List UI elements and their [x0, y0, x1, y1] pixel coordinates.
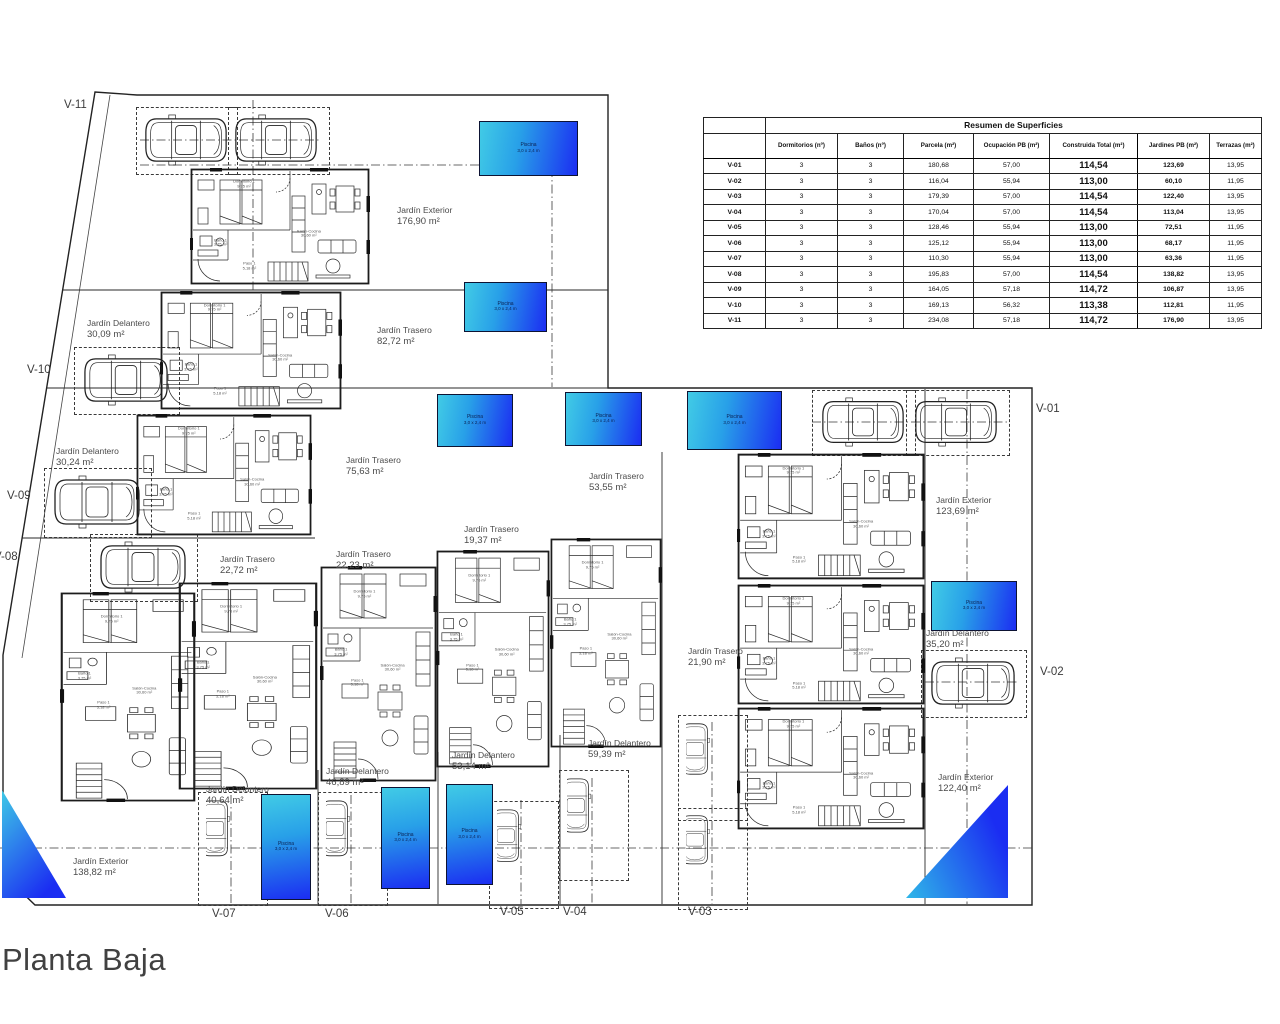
garden-name: Jardín Exterior	[938, 772, 993, 783]
garden-label: Jardín Delantero35,20 m²	[926, 628, 989, 651]
car-icon	[497, 808, 549, 900]
value-cell: 3	[838, 251, 904, 267]
table-row: V-0533128,4655,94113,0072,5111,95	[704, 220, 1262, 236]
value-cell: 3	[838, 205, 904, 221]
villa-floorplan: Dormitorio 1 9,75 m²Baño 1 3,75 m²Paso 1…	[737, 584, 925, 705]
villa-id-label: V-11	[64, 99, 87, 111]
value-cell: 3	[838, 267, 904, 283]
table-column-header: Baños (nº)	[838, 133, 904, 158]
value-cell: 3	[766, 158, 838, 174]
villa-id-cell: V-11	[704, 313, 766, 329]
garden-label: Jardín Delantero59,39 m²	[588, 738, 651, 761]
villa-floorplan: Dormitorio 1 9,75 m²Baño 1 3,75 m²Paso 1…	[60, 592, 196, 802]
villa-id-cell: V-06	[704, 236, 766, 252]
villa-id-label: V-04	[563, 906, 587, 918]
table-column-header	[704, 133, 766, 158]
value-cell: 170,04	[904, 205, 974, 221]
value-cell: 113,04	[1138, 205, 1210, 221]
value-cell: 3	[766, 313, 838, 329]
garden-name: Jardín Delantero	[87, 318, 150, 329]
garden-area: 30,09 m²	[87, 329, 150, 341]
value-cell: 114,54	[1050, 158, 1138, 174]
garden-label: Jardín Trasero19,37 m²	[464, 524, 519, 547]
villa-id-cell: V-04	[704, 205, 766, 221]
villa-floorplan: Dormitorio 1 9,75 m²Baño 1 3,75 m²Paso 1…	[550, 538, 662, 748]
villa-floorplan: Dormitorio 1 9,75 m²Baño 1 3,75 m²Paso 1…	[737, 453, 925, 580]
value-cell: 3	[838, 220, 904, 236]
table-row: V-0433170,0457,00114,54113,0413,95	[704, 205, 1262, 221]
value-cell: 3	[766, 298, 838, 314]
garden-name: Jardín Trasero	[220, 554, 275, 565]
villa-id-label: V-07	[212, 908, 236, 920]
villa-id-label: V-08	[0, 551, 18, 563]
villa-floorplan: Dormitorio 1 9,75 m²Baño 1 3,75 m²Paso 1…	[178, 582, 318, 790]
garden-name: Jardín Trasero	[688, 646, 743, 657]
villa-floorplan: Dormitorio 1 9,75 m²Baño 1 3,75 m²Paso 1…	[436, 550, 550, 768]
garden-area: 19,37 m²	[464, 535, 519, 547]
garden-area: 122,40 m²	[938, 783, 993, 795]
garden-area: 40,64 m²	[206, 795, 269, 807]
value-cell: 11,95	[1210, 220, 1262, 236]
surfaces-table-body: V-0133180,6857,00114,54123,6913,95V-0233…	[704, 158, 1262, 329]
table-row: V-0833195,8357,00114,54138,8213,95	[704, 267, 1262, 283]
villa-floorplan: Dormitorio 1 9,75 m²Baño 1 3,75 m²Paso 1…	[737, 707, 925, 830]
garden-name: Jardín Exterior	[397, 205, 452, 216]
pool-dimensions: 3,0 x 2,4 m	[394, 838, 416, 843]
value-cell: 13,95	[1210, 205, 1262, 221]
car-icon	[233, 114, 319, 166]
value-cell: 57,00	[974, 267, 1050, 283]
pool: Piscina3,0 x 2,4 m	[446, 784, 493, 885]
villa-id-cell: V-10	[704, 298, 766, 314]
value-cell: 114,54	[1050, 189, 1138, 205]
garden-label: Jardín Exterior123,69 m²	[936, 495, 991, 518]
pool: Piscina3,0 x 2,4 m	[687, 391, 782, 450]
value-cell: 57,18	[974, 282, 1050, 298]
garden-name: Jardín Delantero	[56, 446, 119, 457]
car-icon	[98, 541, 188, 593]
value-cell: 113,38	[1050, 298, 1138, 314]
value-cell: 68,17	[1138, 236, 1210, 252]
villa-id-cell: V-07	[704, 251, 766, 267]
surfaces-table: Resumen de SuperficiesDormitorios (nº)Ba…	[703, 117, 1262, 329]
value-cell: 116,04	[904, 174, 974, 190]
value-cell: 55,94	[974, 236, 1050, 252]
villa-id-label: V-10	[27, 364, 51, 376]
value-cell: 3	[766, 282, 838, 298]
value-cell: 110,30	[904, 251, 974, 267]
value-cell: 55,94	[974, 251, 1050, 267]
value-cell: 56,32	[974, 298, 1050, 314]
garden-label: Jardín Delantero53,14 m²	[452, 750, 515, 773]
table-row: V-0733110,3055,94113,0063,3611,95	[704, 251, 1262, 267]
garden-area: 59,39 m²	[588, 749, 651, 761]
value-cell: 176,90	[1138, 313, 1210, 329]
value-cell: 60,10	[1138, 174, 1210, 190]
value-cell: 113,00	[1050, 174, 1138, 190]
value-cell: 3	[766, 251, 838, 267]
garden-label: Jardín Delantero30,24 m²	[56, 446, 119, 469]
villa-floorplan: Dormitorio 1 9,75 m²Baño 1 3,75 m²Paso 1…	[190, 168, 370, 285]
value-cell: 11,95	[1210, 174, 1262, 190]
table-column-header: Dormitorios (nº)	[766, 133, 838, 158]
value-cell: 13,95	[1210, 282, 1262, 298]
value-cell: 13,95	[1210, 267, 1262, 283]
pool: Piscina3,0 x 2,4 m	[437, 394, 513, 447]
villa-id-label: V-05	[500, 906, 524, 918]
value-cell: 123,69	[1138, 158, 1210, 174]
garden-name: Jardín Delantero	[926, 628, 989, 639]
garden-area: 176,90 m²	[397, 216, 452, 228]
value-cell: 3	[838, 174, 904, 190]
garden-label: Jardín Trasero21,90 m²	[688, 646, 743, 669]
value-cell: 114,72	[1050, 282, 1138, 298]
car-icon	[206, 799, 258, 897]
table-corner-cell	[704, 118, 766, 134]
garden-area: 138,82 m²	[73, 867, 128, 879]
garden-label: Jardín Delantero46,89 m²	[326, 766, 389, 789]
value-cell: 164,05	[904, 282, 974, 298]
value-cell: 57,00	[974, 205, 1050, 221]
garden-label: Jardín Exterior138,82 m²	[73, 856, 128, 879]
table-column-header: Parcela (m²)	[904, 133, 974, 158]
table-row: V-1133234,0857,18114,72176,9013,95	[704, 313, 1262, 329]
car-icon	[913, 397, 999, 447]
value-cell: 3	[766, 205, 838, 221]
value-cell: 169,13	[904, 298, 974, 314]
pool-dimensions: 3,0 x 2,4 m	[275, 847, 297, 852]
value-cell: 113,00	[1050, 236, 1138, 252]
value-cell: 128,46	[904, 220, 974, 236]
villa-id-cell: V-03	[704, 189, 766, 205]
plan-title: Planta Baja	[2, 942, 166, 978]
value-cell: 11,95	[1210, 236, 1262, 252]
villa-id-label: V-06	[325, 908, 349, 920]
value-cell: 3	[838, 158, 904, 174]
value-cell: 13,95	[1210, 189, 1262, 205]
pool-dimensions: 3,0 x 2,4 m	[963, 606, 985, 611]
table-row: V-0233116,0455,94113,0060,1011,95	[704, 174, 1262, 190]
value-cell: 3	[766, 174, 838, 190]
villa-floorplan: Dormitorio 1 9,75 m²Baño 1 3,75 m²Paso 1…	[160, 291, 342, 410]
pool-triangle	[2, 790, 66, 898]
garden-area: 82,72 m²	[377, 336, 432, 348]
value-cell: 114,54	[1050, 205, 1138, 221]
value-cell: 113,00	[1050, 251, 1138, 267]
garden-area: 53,14 m²	[452, 761, 515, 773]
table-title: Resumen de Superficies	[766, 118, 1262, 134]
pool: Piscina3,0 x 2,4 m	[261, 794, 311, 900]
car-icon	[143, 114, 229, 166]
table-column-header: Jardines PB (m²)	[1138, 133, 1210, 158]
villa-floorplan: Dormitorio 1 9,75 m²Baño 1 3,75 m²Paso 1…	[136, 414, 312, 536]
garden-name: Jardín Trasero	[464, 524, 519, 535]
villa-id-cell: V-08	[704, 267, 766, 283]
car-icon	[820, 397, 906, 447]
table-row: V-1033169,1356,32113,38112,8111,95	[704, 298, 1262, 314]
value-cell: 3	[838, 236, 904, 252]
value-cell: 13,95	[1210, 158, 1262, 174]
value-cell: 234,08	[904, 313, 974, 329]
pool-dimensions: 3,0 x 2,4 m	[464, 421, 486, 426]
value-cell: 72,51	[1138, 220, 1210, 236]
pool-dimensions: 3,0 x 2,4 m	[592, 419, 614, 424]
value-cell: 57,00	[974, 189, 1050, 205]
value-cell: 138,82	[1138, 267, 1210, 283]
value-cell: 55,94	[974, 220, 1050, 236]
villa-id-cell: V-09	[704, 282, 766, 298]
garden-name: Jardín Exterior	[936, 495, 991, 506]
value-cell: 11,95	[1210, 298, 1262, 314]
garden-name: Jardín Delantero	[588, 738, 651, 749]
villa-id-label: V-09	[7, 490, 31, 502]
car-icon	[82, 354, 170, 406]
value-cell: 11,95	[1210, 251, 1262, 267]
villa-id-cell: V-01	[704, 158, 766, 174]
pool-dimensions: 3,0 x 2,4 m	[458, 835, 480, 840]
value-cell: 3	[766, 220, 838, 236]
garden-name: Jardín Delantero	[326, 766, 389, 777]
table-column-header: Ocupación PB (m²)	[974, 133, 1050, 158]
car-icon	[929, 657, 1017, 709]
pool: Piscina3,0 x 2,4 m	[381, 787, 430, 889]
car-icon	[52, 475, 142, 529]
garden-label: Jardín Delantero40,64 m²	[206, 784, 269, 807]
garden-name: Jardín Trasero	[336, 549, 391, 560]
car-icon	[686, 814, 738, 900]
garden-label: Jardín Trasero53,55 m²	[589, 471, 644, 494]
pool: Piscina3,0 x 2,4 m	[931, 581, 1017, 631]
value-cell: 106,87	[1138, 282, 1210, 298]
value-cell: 3	[838, 282, 904, 298]
pool: Piscina3,0 x 2,4 m	[464, 282, 547, 332]
value-cell: 112,81	[1138, 298, 1210, 314]
garden-label: Jardín Trasero82,72 m²	[377, 325, 432, 348]
garden-label: Jardín Exterior122,40 m²	[938, 772, 993, 795]
garden-area: 22,23 m²	[336, 560, 391, 572]
garden-label: Jardín Trasero75,63 m²	[346, 455, 401, 478]
car-icon	[326, 799, 378, 897]
villa-id-label: V-01	[1036, 403, 1060, 415]
value-cell: 114,54	[1050, 267, 1138, 283]
table-row: V-0333179,3957,00114,54122,4013,95	[704, 189, 1262, 205]
table-row: V-0633125,1255,94113,0068,1711,95	[704, 236, 1262, 252]
garden-name: Jardín Trasero	[346, 455, 401, 466]
garden-label: Jardín Trasero22,23 m²	[336, 549, 391, 572]
car-icon	[686, 722, 738, 812]
villa-id-label: V-03	[688, 906, 712, 918]
pool: Piscina3,0 x 2,4 m	[565, 392, 642, 446]
garden-area: 123,69 m²	[936, 506, 991, 518]
garden-area: 35,20 m²	[926, 639, 989, 651]
garden-label: Jardín Exterior176,90 m²	[397, 205, 452, 228]
site-plan-page: Dormitorio 1 9,75 m²Baño 1 3,75 m²Paso 1…	[0, 0, 1280, 1024]
garden-area: 22,72 m²	[220, 565, 275, 577]
value-cell: 57,00	[974, 158, 1050, 174]
value-cell: 55,94	[974, 174, 1050, 190]
value-cell: 13,95	[1210, 313, 1262, 329]
garden-area: 53,55 m²	[589, 482, 644, 494]
value-cell: 3	[838, 298, 904, 314]
villa-id-label: V-02	[1040, 666, 1064, 678]
value-cell: 3	[766, 267, 838, 283]
table-column-header: Construida Total (m²)	[1050, 133, 1138, 158]
value-cell: 57,18	[974, 313, 1050, 329]
garden-area: 46,89 m²	[326, 777, 389, 789]
table-column-header: Terrazas (m²)	[1210, 133, 1262, 158]
pool-dimensions: 3,0 x 2,4 m	[517, 149, 539, 154]
value-cell: 3	[838, 313, 904, 329]
pool-dimensions: 3,0 x 2,4 m	[494, 307, 516, 312]
value-cell: 122,40	[1138, 189, 1210, 205]
value-cell: 3	[766, 236, 838, 252]
garden-name: Jardín Delantero	[452, 750, 515, 761]
pool-dimensions: 3,0 x 2,4 m	[723, 421, 745, 426]
value-cell: 3	[766, 189, 838, 205]
value-cell: 113,00	[1050, 220, 1138, 236]
car-icon	[567, 777, 619, 872]
garden-name: Jardín Exterior	[73, 856, 128, 867]
table-row: V-0933164,0557,18114,72106,8713,95	[704, 282, 1262, 298]
value-cell: 179,39	[904, 189, 974, 205]
pool: Piscina3,0 x 2,4 m	[479, 121, 578, 176]
garden-area: 30,24 m²	[56, 457, 119, 469]
value-cell: 3	[838, 189, 904, 205]
surfaces-table-head: Resumen de SuperficiesDormitorios (nº)Ba…	[704, 118, 1262, 159]
value-cell: 180,68	[904, 158, 974, 174]
garden-name: Jardín Delantero	[206, 784, 269, 795]
garden-name: Jardín Trasero	[377, 325, 432, 336]
garden-area: 75,63 m²	[346, 466, 401, 478]
villa-id-cell: V-05	[704, 220, 766, 236]
table-row: V-0133180,6857,00114,54123,6913,95	[704, 158, 1262, 174]
villa-floorplan: Dormitorio 1 9,75 m²Baño 1 3,75 m²Paso 1…	[320, 566, 437, 782]
garden-label: Jardín Trasero22,72 m²	[220, 554, 275, 577]
value-cell: 63,36	[1138, 251, 1210, 267]
garden-area: 21,90 m²	[688, 657, 743, 669]
garden-label: Jardín Delantero30,09 m²	[87, 318, 150, 341]
garden-name: Jardín Trasero	[589, 471, 644, 482]
value-cell: 114,72	[1050, 313, 1138, 329]
villa-id-cell: V-02	[704, 174, 766, 190]
value-cell: 125,12	[904, 236, 974, 252]
value-cell: 195,83	[904, 267, 974, 283]
